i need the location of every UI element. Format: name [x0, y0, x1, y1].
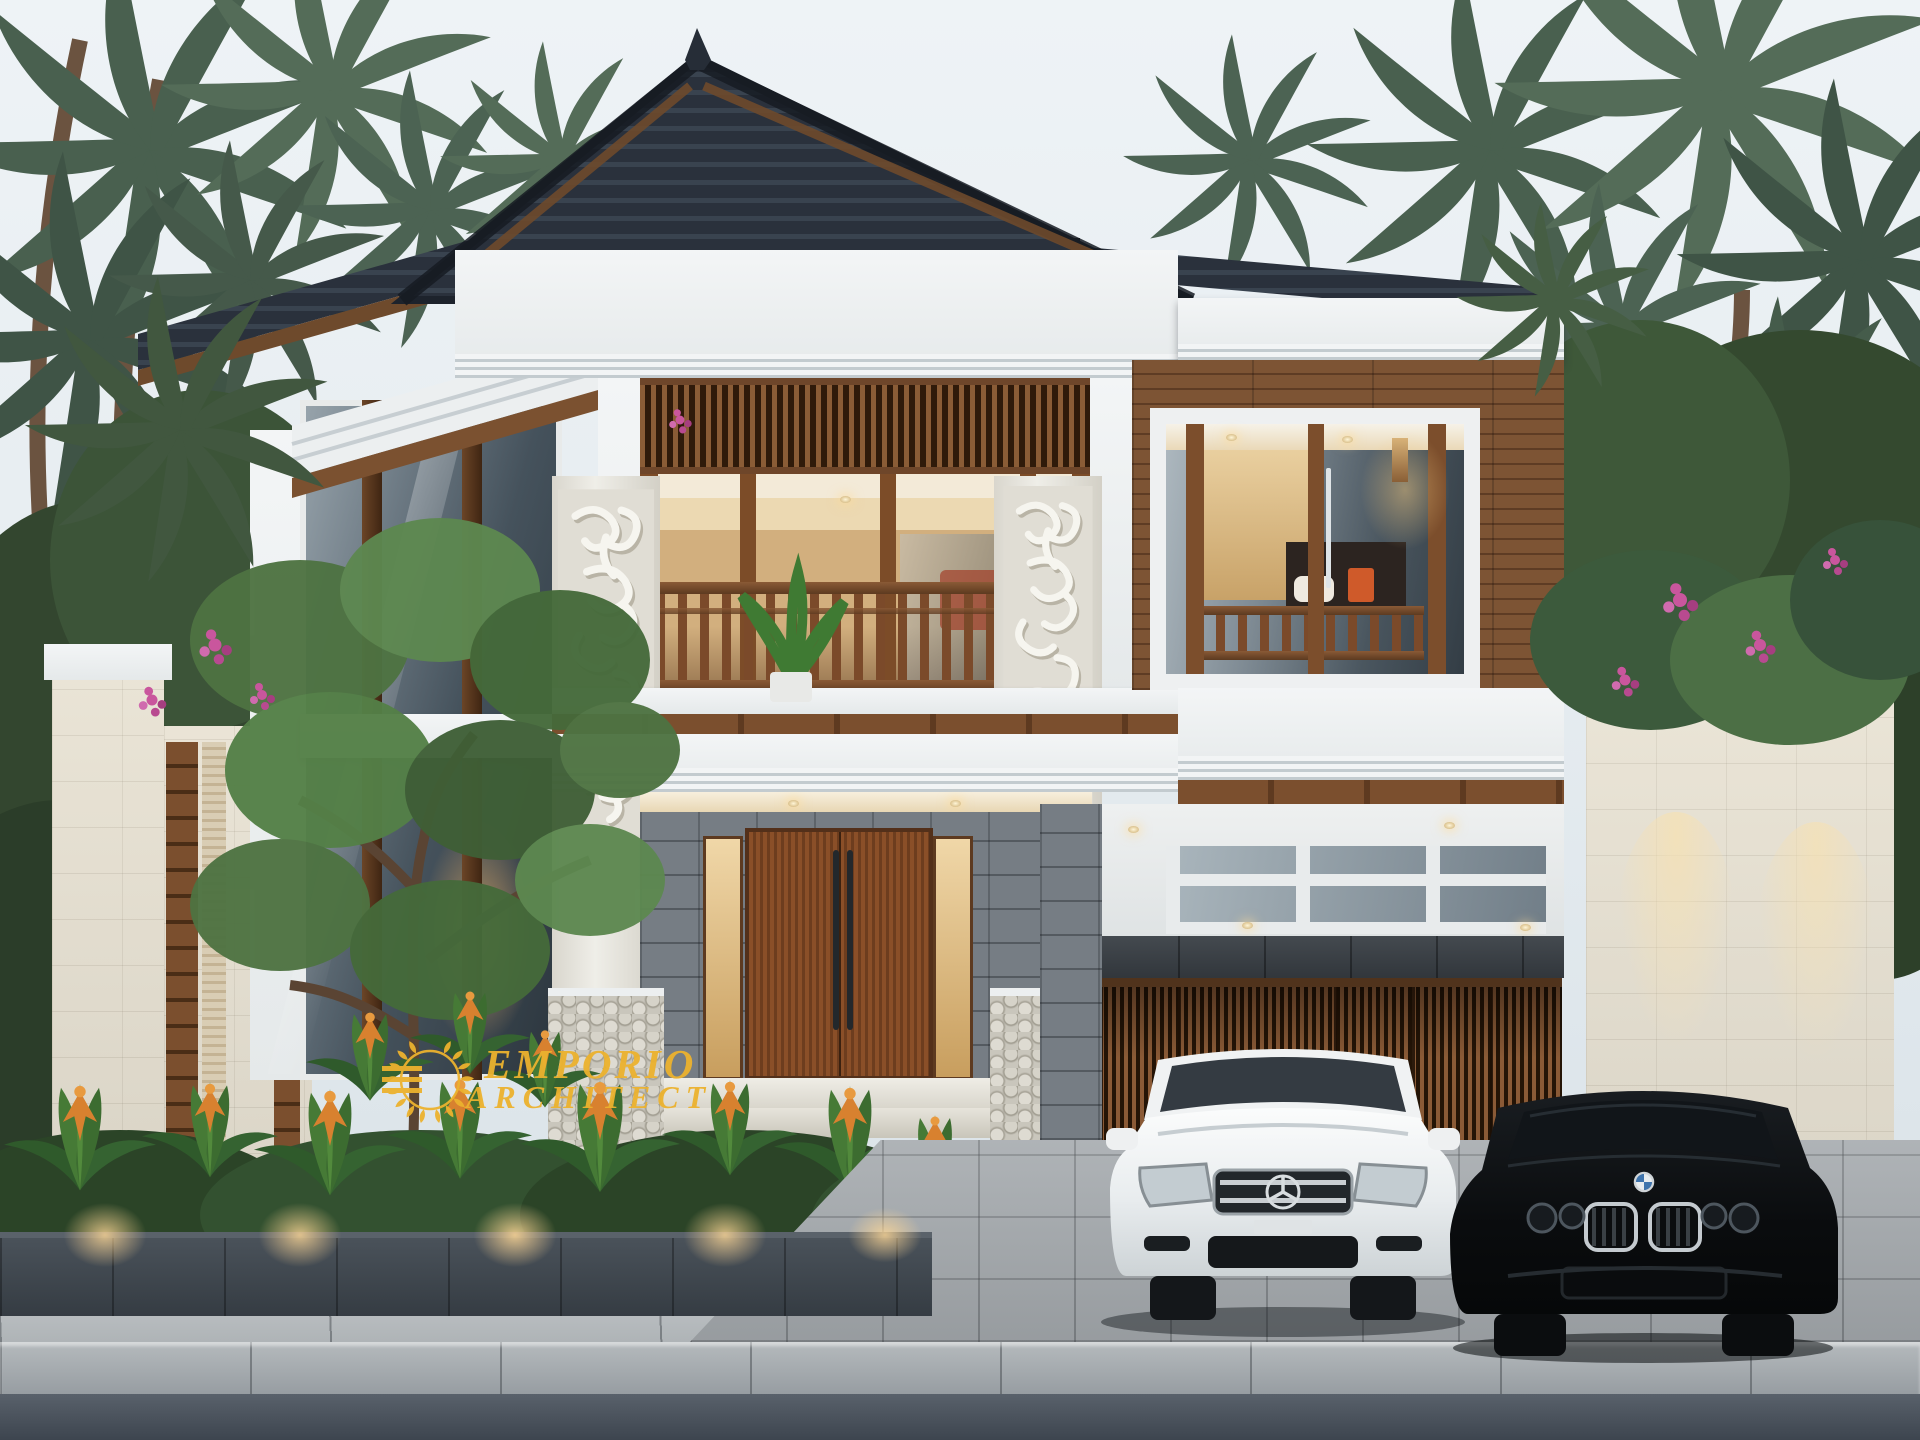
foreground-palm: [24, 276, 327, 583]
lower-intake: [1208, 1236, 1358, 1268]
fog-slot-left: [1144, 1236, 1190, 1251]
asphalt-street: [0, 1394, 1920, 1440]
wheel-left: [1494, 1314, 1566, 1356]
headlight-right: [1354, 1164, 1426, 1206]
watermark: EMPORIO ARCHITECT: [382, 1030, 712, 1126]
wheel-right: [1350, 1276, 1416, 1320]
foreground-palm-right: [1456, 202, 1649, 398]
planter-wall: [0, 1232, 932, 1316]
watermark-line2: ARCHITECT: [466, 1081, 712, 1113]
wheel-left: [1150, 1276, 1216, 1320]
black-coupe: [1438, 1046, 1850, 1366]
laurel-wreath-logo: [382, 1030, 478, 1126]
headlight-left: [1140, 1164, 1212, 1206]
bmw-roundel: [1635, 1173, 1653, 1191]
white-sedan: [1088, 1022, 1478, 1342]
watermark-text: EMPORIO ARCHITECT: [484, 1044, 712, 1113]
mirror-left: [1106, 1128, 1138, 1150]
wheel-right: [1722, 1314, 1794, 1356]
fog-slot-right: [1376, 1236, 1422, 1251]
architectural-rendering: EMPORIO ARCHITECT: [0, 0, 1920, 1440]
license-plate: [1254, 1220, 1312, 1234]
right-garden: [1530, 520, 1920, 745]
balcony-potted-plant: [742, 572, 844, 702]
lower-intake: [1562, 1268, 1726, 1298]
